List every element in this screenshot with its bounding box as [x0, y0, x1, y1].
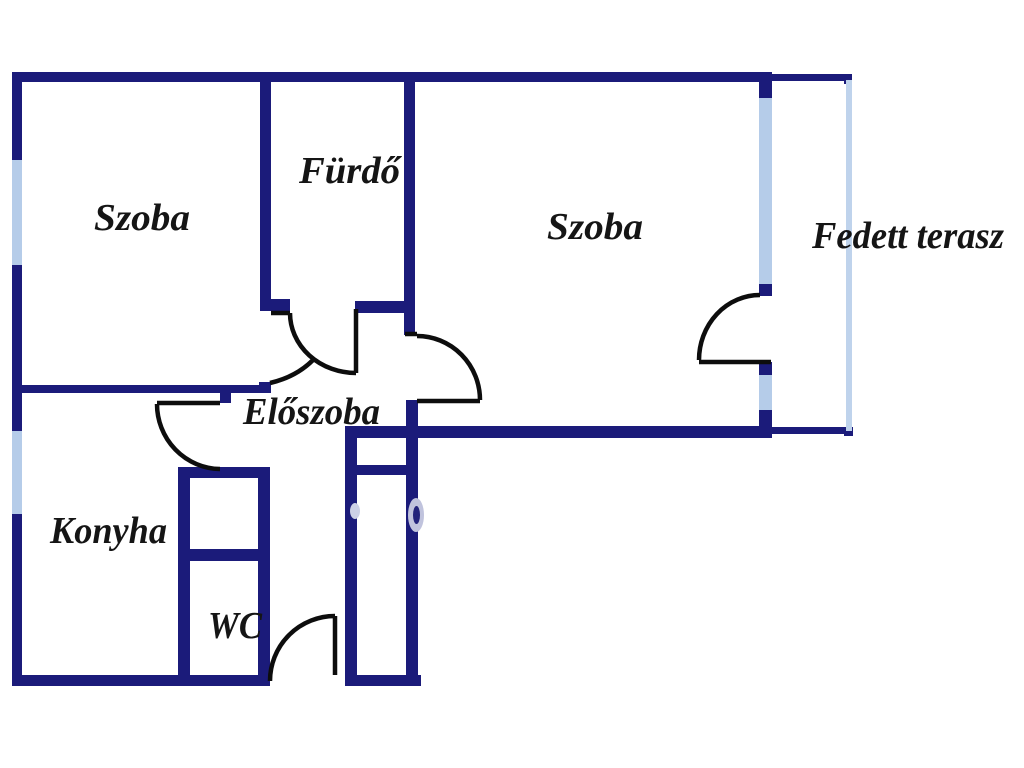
svg-text:Konyha: Konyha — [49, 510, 167, 552]
svg-text:Szoba: Szoba — [547, 206, 643, 248]
svg-text:Fürdő: Fürdő — [298, 150, 402, 192]
svg-text:Fedett terasz: Fedett terasz — [811, 215, 1004, 257]
svg-text:Előszoba: Előszoba — [242, 391, 380, 433]
svg-text:WC: WC — [208, 605, 263, 647]
svg-text:Szoba: Szoba — [94, 197, 190, 239]
